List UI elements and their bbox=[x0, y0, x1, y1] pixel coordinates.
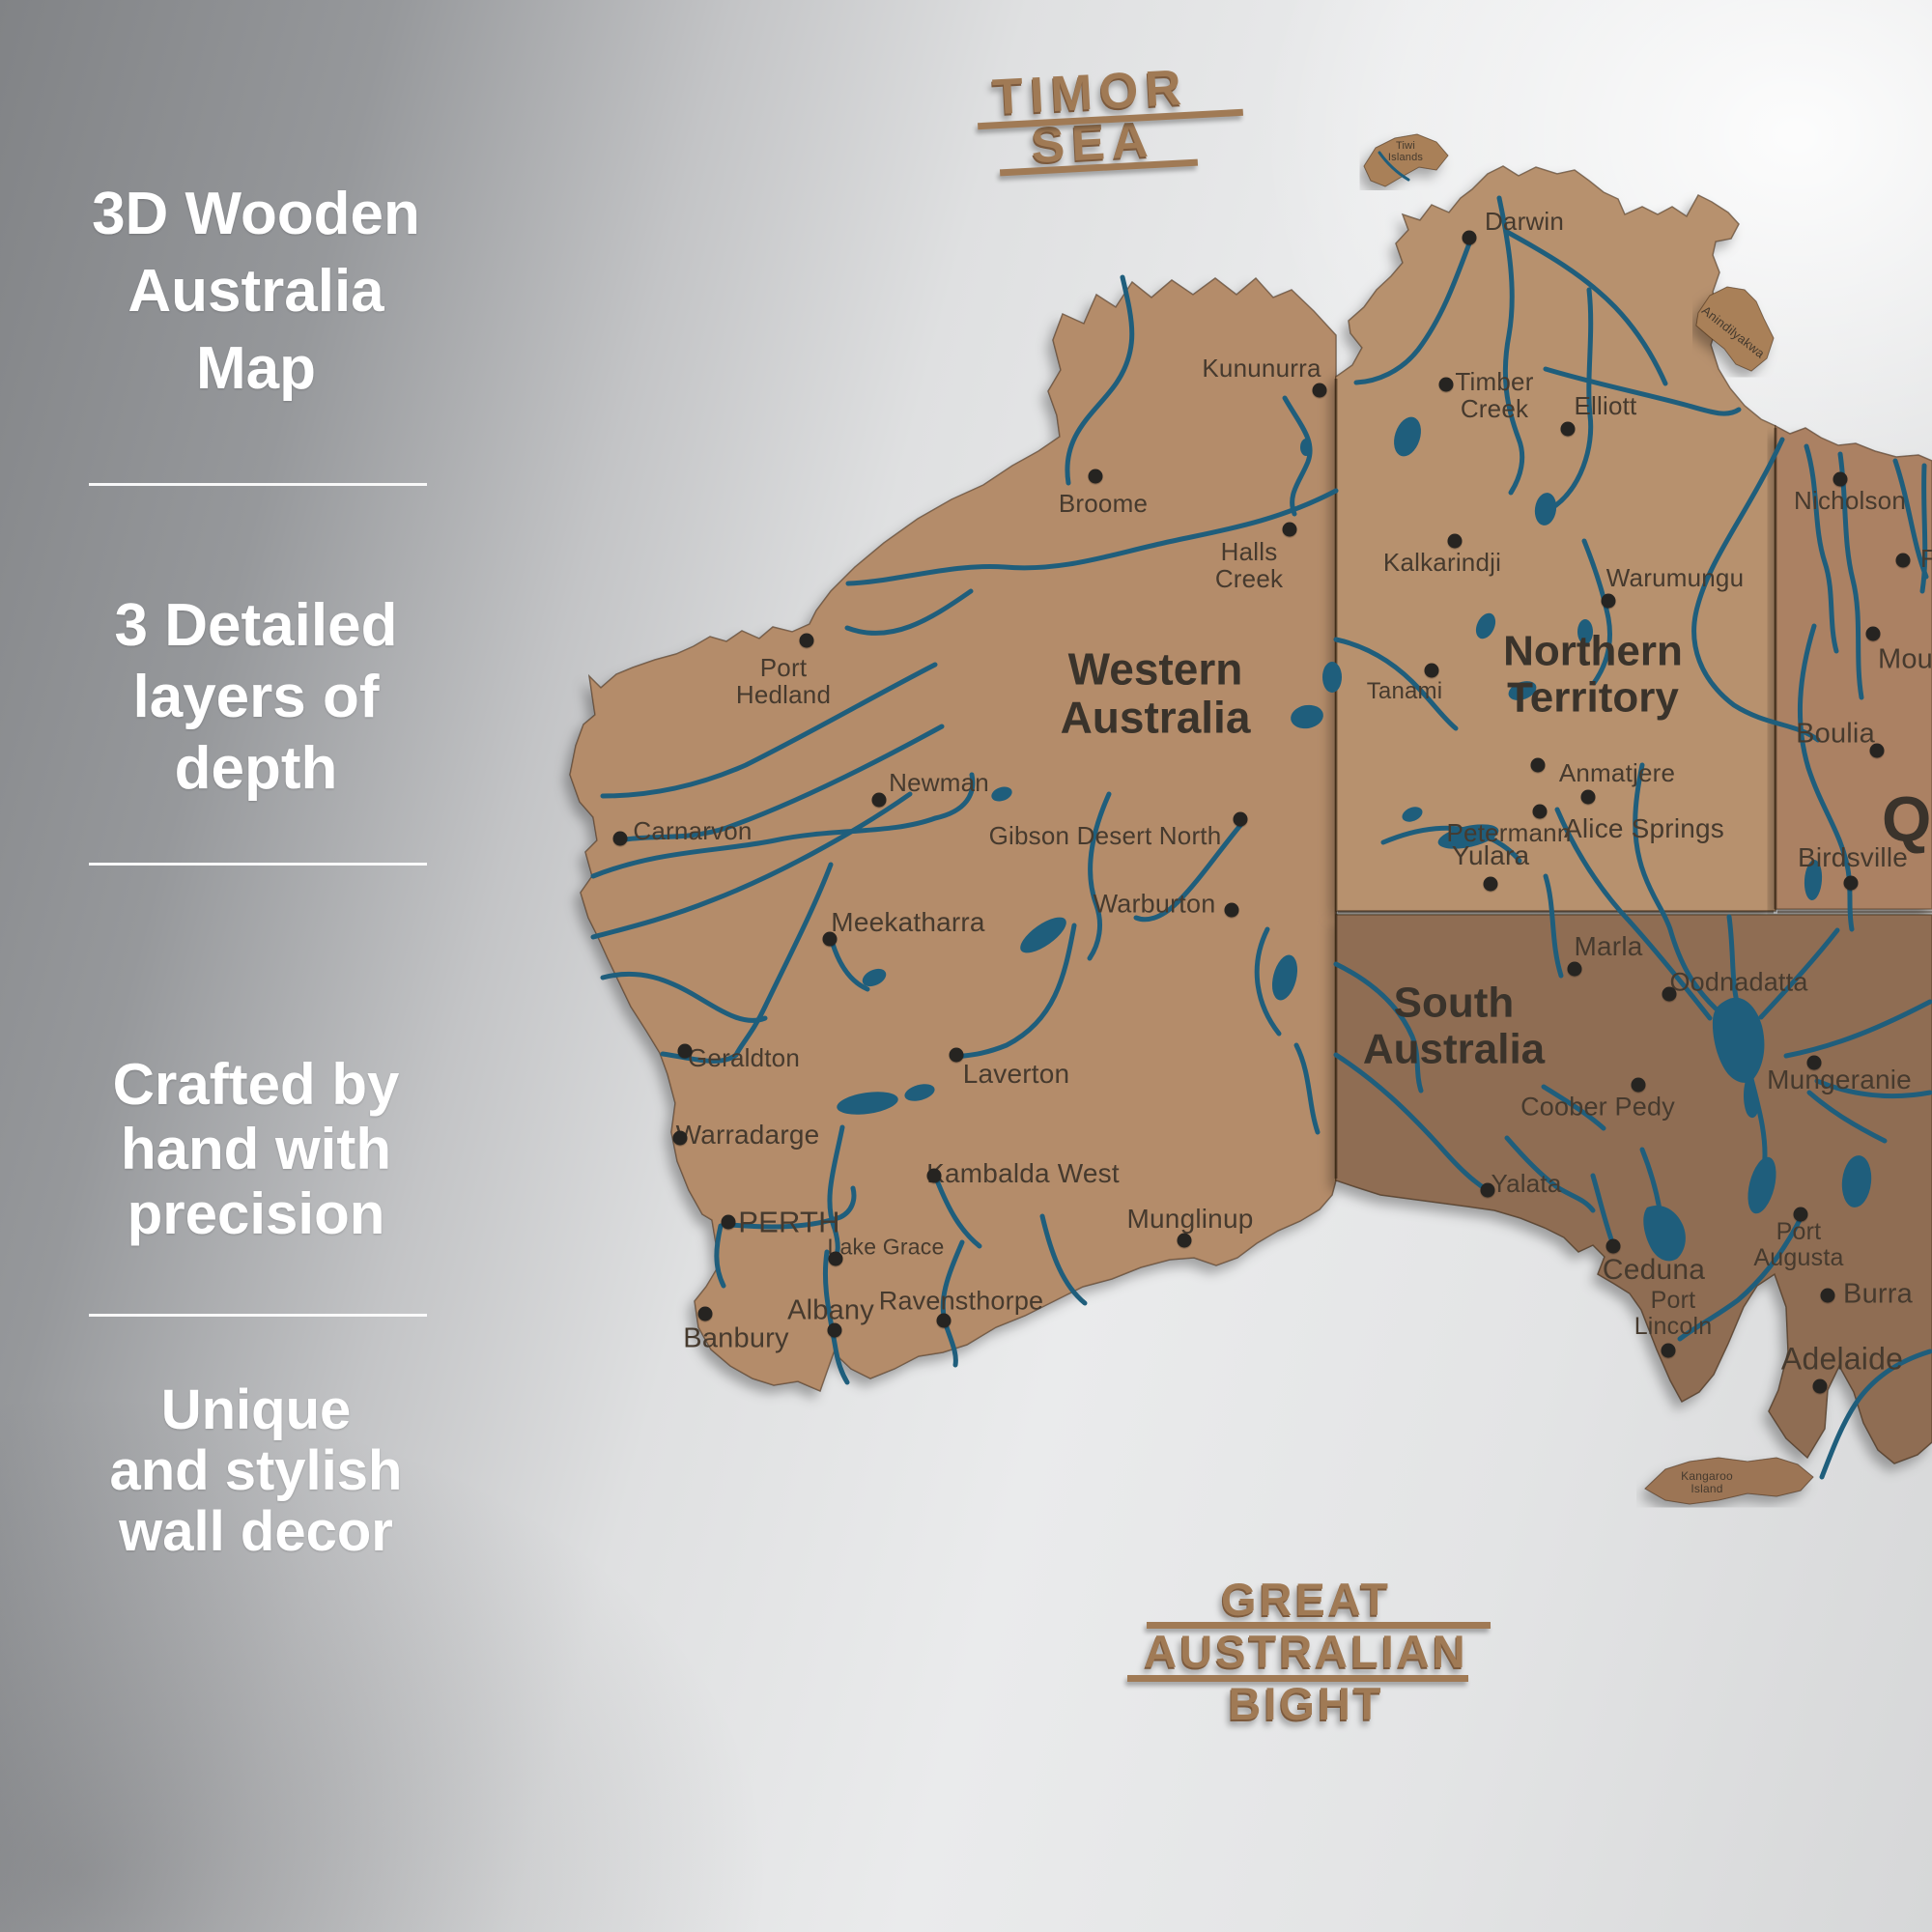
island-label-tiwi-islands: Tiwi Islands bbox=[1388, 141, 1423, 164]
city-dot-meekatharra bbox=[823, 932, 838, 947]
city-label-halls-creek: Halls Creek bbox=[1215, 538, 1283, 592]
city-dot-ceduna bbox=[1606, 1239, 1621, 1254]
city-dot-kununurra bbox=[1313, 384, 1327, 398]
state-label-western-australia: Western Australia bbox=[1061, 645, 1251, 741]
city-label-warumungu: Warumungu bbox=[1606, 564, 1744, 591]
city-dot-timber-creek bbox=[1439, 378, 1454, 392]
city-label-nicholson: Nicholson bbox=[1794, 487, 1906, 514]
city-dot-birdsville bbox=[1844, 876, 1859, 891]
city-dot-adelaide bbox=[1813, 1379, 1828, 1394]
city-label-laverton: Laverton bbox=[963, 1060, 1070, 1089]
city-dot-gibson-desert-north bbox=[1234, 812, 1248, 827]
city-label-albany: Albany bbox=[787, 1295, 874, 1325]
city-label-kununurra: Kununurra bbox=[1202, 355, 1321, 382]
city-label-marla: Marla bbox=[1574, 932, 1642, 961]
city-label-kalkarindji: Kalkarindji bbox=[1383, 549, 1501, 576]
city-label-mount: Mount bbox=[1878, 644, 1932, 674]
bight-bar bbox=[1127, 1675, 1468, 1682]
city-label-birdsville: Birdsville bbox=[1798, 843, 1908, 872]
city-label-alice-springs: Alice Springs bbox=[1564, 814, 1724, 843]
city-label-newman: Newman bbox=[889, 769, 989, 796]
city-dot-port-hedland bbox=[800, 634, 814, 648]
city-label-oodnadatta: Oodnadatta bbox=[1669, 968, 1807, 996]
city-label-geraldton: Geraldton bbox=[688, 1044, 800, 1071]
city-label-adelaide: Adelaide bbox=[1781, 1343, 1903, 1377]
city-label-munglinup: Munglinup bbox=[1127, 1205, 1254, 1234]
city-dot-mungeranie bbox=[1807, 1056, 1822, 1070]
city-label-perth: PERTH bbox=[738, 1206, 840, 1237]
state-piece-northern-territory bbox=[1336, 166, 1776, 911]
city-dot-elliott bbox=[1561, 422, 1576, 437]
city-dot-coober-pedy bbox=[1632, 1078, 1646, 1093]
city-dot-warradarge bbox=[673, 1131, 688, 1146]
city-label-burra: Burra bbox=[1843, 1279, 1913, 1309]
city-label-mungeranie: Mungeranie bbox=[1767, 1065, 1912, 1094]
city-label-lake-grace: Lake Grace bbox=[828, 1236, 945, 1260]
city-label-yalata: Yalata bbox=[1492, 1170, 1562, 1197]
city-dot-kalkarindji bbox=[1448, 534, 1463, 549]
city-dot-oodnadatta bbox=[1662, 987, 1677, 1002]
state-label-northern-territory: Northern Territory bbox=[1503, 628, 1683, 720]
city-dot-halls-creek bbox=[1283, 523, 1297, 537]
city-label-elliott: Elliott bbox=[1575, 392, 1637, 419]
city-dot-tanami bbox=[1425, 664, 1439, 678]
city-label-yulara: Yulara bbox=[1452, 841, 1530, 870]
bight-bar bbox=[1147, 1622, 1491, 1629]
australia-map-graphic bbox=[0, 0, 1932, 1932]
city-dot-darwin bbox=[1463, 231, 1477, 245]
island-label-kangaroo-island: Kangaroo Island bbox=[1681, 1470, 1733, 1495]
city-dot-burra bbox=[1821, 1289, 1835, 1303]
city-dot-warumungu bbox=[1602, 594, 1616, 609]
state-label-south-australia: South Australia bbox=[1363, 980, 1545, 1071]
city-label-ravensthorpe: Ravensthorpe bbox=[879, 1287, 1044, 1315]
city-dot-perth bbox=[722, 1215, 736, 1230]
great-australian-bight-wooden-text: GREAT AUSTRALIAN BIGHT bbox=[1144, 1574, 1467, 1730]
city-dot-nicholson bbox=[1833, 472, 1848, 487]
city-dot-f bbox=[1896, 554, 1911, 568]
city-dot-ravensthorpe bbox=[937, 1314, 952, 1328]
city-dot-yulara bbox=[1484, 877, 1498, 892]
city-label-boulia: Boulia bbox=[1796, 719, 1875, 749]
city-label-tanami: Tanami bbox=[1367, 679, 1443, 704]
city-dot-port-augusta bbox=[1794, 1207, 1808, 1222]
city-label-banbury: Banbury bbox=[683, 1323, 788, 1353]
city-label-anmatjere: Anmatjere bbox=[1559, 759, 1675, 786]
city-dot-lake-grace bbox=[829, 1252, 843, 1266]
product-photo-scene: 3D Wooden Australia Map 3 Detailed layer… bbox=[0, 0, 1932, 1932]
city-dot-newman bbox=[872, 793, 887, 808]
city-dot-albany bbox=[828, 1323, 842, 1338]
city-dot-laverton bbox=[950, 1048, 964, 1063]
city-label-meekatharra: Meekatharra bbox=[831, 908, 984, 937]
city-dot-munglinup bbox=[1178, 1234, 1192, 1248]
city-label-warburton: Warburton bbox=[1094, 890, 1216, 918]
city-label-broome: Broome bbox=[1059, 490, 1148, 517]
city-label-gibson-desert-north: Gibson Desert North bbox=[989, 822, 1222, 849]
city-dot-alice-springs bbox=[1581, 790, 1596, 805]
city-dot-kambalda-west bbox=[927, 1169, 942, 1183]
city-label-carnarvon: Carnarvon bbox=[633, 817, 752, 844]
city-dot-banbury bbox=[698, 1307, 713, 1321]
city-label-ceduna: Ceduna bbox=[1603, 1255, 1705, 1286]
city-label-f: F bbox=[1920, 545, 1932, 572]
city-dot-geraldton bbox=[678, 1044, 693, 1059]
city-label-port-lincoln: Port Lincoln bbox=[1634, 1288, 1713, 1340]
city-dot-mount bbox=[1866, 627, 1881, 641]
city-dot-port-lincoln bbox=[1662, 1344, 1676, 1358]
city-label-port-hedland: Port Hedland bbox=[736, 654, 831, 708]
city-dot-boulia bbox=[1870, 744, 1885, 758]
city-label-timber-creek: Timber Creek bbox=[1455, 368, 1533, 422]
city-label-kambalda-west: Kambalda West bbox=[926, 1159, 1120, 1188]
city-dot-carnarvon bbox=[613, 832, 628, 846]
city-dot-marla bbox=[1568, 962, 1582, 977]
city-label-port-augusta: Port Augusta bbox=[1753, 1219, 1843, 1271]
city-label-coober-pedy: Coober Pedy bbox=[1520, 1093, 1675, 1121]
city-label-warradarge: Warradarge bbox=[676, 1121, 820, 1150]
city-dot-yalata bbox=[1481, 1183, 1495, 1198]
city-dot-petermann bbox=[1533, 805, 1548, 819]
city-dot-broome bbox=[1089, 469, 1103, 484]
city-label-darwin: Darwin bbox=[1485, 208, 1564, 235]
city-dot-warburton bbox=[1225, 903, 1239, 918]
city-dot-anmatjere bbox=[1531, 758, 1546, 773]
